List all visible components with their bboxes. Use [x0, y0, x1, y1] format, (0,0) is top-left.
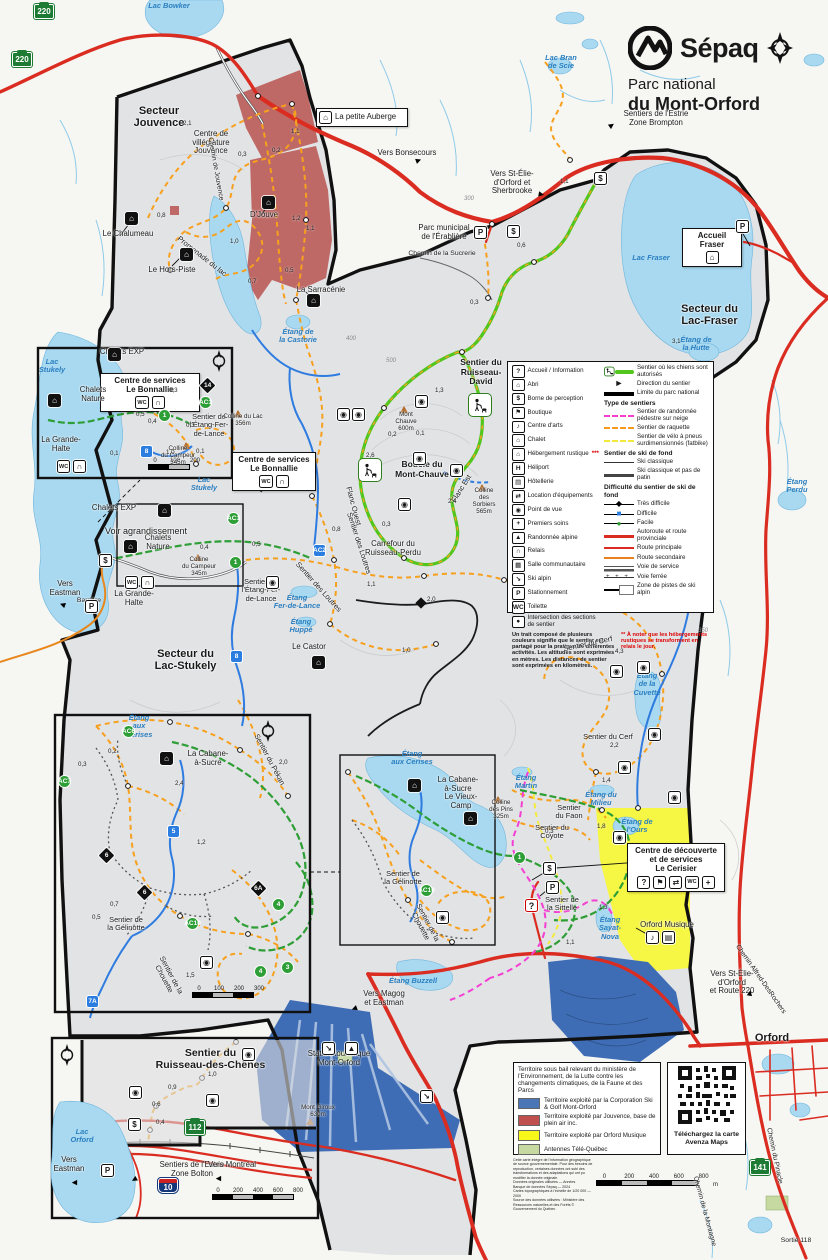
map-label: 2,0 [279, 760, 288, 767]
map-icon: P [101, 1164, 114, 1177]
trail-marker: 1 [513, 851, 526, 864]
legend-facilities: ? Accueil / Information ⌂ Abri $ Borne d… [512, 365, 600, 630]
facility-label: Toilette [528, 604, 548, 611]
map-label: 0,8 [157, 213, 166, 220]
map-label: 1,1 [367, 582, 376, 589]
map-label: Orford Musique [626, 921, 708, 930]
map-icon: ⌂ [158, 504, 171, 517]
roads-legend-list: Autoroute et route provinciale Route pri… [604, 529, 709, 596]
map-label: Lac Stukely [183, 476, 225, 493]
map-label: 0,2 [388, 432, 397, 439]
warming-hut-icon: ∩ Relais [512, 546, 600, 559]
map-label: 0,6 [517, 243, 526, 250]
map-label: 0,3 [470, 300, 479, 307]
map-label: Chemin de la Sucrerie [396, 250, 488, 258]
map-label: Vers Eastman [44, 580, 86, 597]
map-icon: ◉ [398, 498, 411, 511]
facility-label: Boutique [528, 410, 552, 417]
map-label: 1,0 [402, 648, 411, 655]
trail-direction-arrow: ► [744, 988, 755, 999]
road-label: Route principale [637, 545, 682, 552]
map-icon: ◉ [352, 408, 365, 421]
dog-allowed-icon [358, 458, 382, 482]
map-label: Lac Stukely [34, 358, 70, 375]
map-icon: $ [594, 172, 607, 185]
railway-swatch: Voie ferrée [604, 573, 709, 581]
difficulty-marker: ● [617, 520, 622, 528]
map-label: Étang Martin [508, 774, 544, 791]
trail-type-label: Sentier de vélo à pneus surdimensionnés … [637, 434, 709, 448]
map-icon: $ [543, 862, 556, 875]
map-icon: ◉ [129, 1086, 142, 1099]
map-label: Colline du Lac 356m [220, 414, 266, 428]
territory-list: Territoire exploité par la Corporation S… [518, 1097, 656, 1155]
map-icon: ↘ [322, 1042, 335, 1055]
facility-icon: ⌂ [512, 434, 525, 447]
map-label: 2,4 [448, 499, 457, 506]
map-label: Sentier du Ruisseau-des-Chênes [118, 1048, 303, 1072]
map-label: 1,0 [230, 239, 239, 246]
warming-hut-icon: ∩ [152, 396, 165, 409]
arts-centre-icon: ♪ Centre d'arts [512, 421, 600, 434]
shop-icon: ⚑ Boutique [512, 407, 600, 420]
facility-label: Intersection des sections de sentier [528, 615, 598, 629]
map-header: Sépaq Parc national du Mont-Orford [628, 26, 824, 115]
map-label: Vers Eastman [46, 1156, 92, 1173]
trail-direction-arrow: ► [536, 188, 547, 199]
trail-types-list: Sentier de randonnée pédestre sur neige … [604, 409, 709, 447]
map-label: Le Vieux- Camp [436, 793, 486, 810]
map-icon: ⌂ [124, 540, 137, 553]
territory-legend: Territoire sous bail relevant du ministè… [513, 1062, 661, 1155]
map-icon: ◉ [242, 1048, 255, 1061]
map-icon: ◉ [200, 956, 213, 969]
road-swatch [604, 547, 634, 549]
map-label: La Cabane- à-Sucre [430, 776, 486, 793]
map-label: Secteur du Lac-Stukely [128, 648, 243, 673]
map-label: 0,5 [92, 915, 101, 922]
map-label: 1,5 [186, 973, 195, 980]
map-label: 1,1 [306, 226, 315, 233]
facility-icon: ⇄ [512, 490, 525, 503]
map-label: Parc municipal de l'Érablière [406, 224, 482, 241]
road-swatch [604, 589, 619, 591]
facility-label: Abri [528, 382, 539, 389]
map-label: Étang Fer-de-Lance [268, 594, 326, 611]
map-icon: ↘ [420, 1090, 433, 1103]
map-label: 0,3 [169, 388, 178, 395]
xc-swatch [604, 474, 634, 477]
accueil-fraser-title: Accueil Fraser [686, 231, 738, 249]
map-label: 0,3 [382, 522, 391, 529]
direction-arrow-icon: ► [604, 380, 634, 388]
trail-marker: AC10 [420, 884, 433, 897]
map-label: 2,2 [610, 743, 619, 750]
road-label: Route secondaire [637, 555, 686, 562]
trail-type-swatch [604, 427, 634, 429]
map-label: 0,7 [110, 902, 119, 909]
trail-marker: AC1 [227, 512, 240, 525]
territory-label: Territoire exploité par la Corporation S… [544, 1097, 656, 1111]
map-icon: ▤ [662, 931, 675, 944]
map-label: Vers Bonsecours [366, 149, 448, 158]
map-label: Station touristique Mont-Orford [288, 1050, 390, 1067]
map-icon: ⌂ [160, 752, 173, 765]
map-label: Chalets Nature [133, 534, 183, 551]
alpine-hiking-icon: ▲ Randonnée alpine [512, 532, 600, 545]
territory-row: Territoire exploité par Jouvence, base d… [518, 1113, 656, 1127]
map-label: 2,4 [175, 781, 184, 788]
park-limit-swatch [604, 392, 634, 396]
facility-icon: H [512, 462, 525, 475]
map-icon: WC [125, 576, 138, 589]
map-label: 0,4 [200, 545, 209, 552]
map-label: 0,3 [78, 762, 87, 769]
map-label: Vers Montréal [196, 1161, 268, 1170]
facility-label: Salle communautaire [528, 562, 586, 569]
map-label: Étang Huppé [280, 618, 322, 635]
trail-types-header: Type de sentiers [604, 400, 709, 407]
map-label: 1,3 [599, 905, 608, 912]
map-label: Colline du Campeur 345m [176, 557, 222, 578]
map-label: Secteur du Lac-Fraser [652, 303, 767, 328]
shelter-icon: ⌂ Abri [512, 379, 600, 392]
map-label: 0,4 [156, 1120, 165, 1127]
map-label: 0,5 [136, 412, 145, 419]
facility-icon: WC [512, 601, 525, 614]
map-label: La Sarracénie [286, 286, 356, 295]
map-label: La Grande- Halte [103, 590, 165, 607]
map-label: 0,2 [272, 148, 281, 155]
bonnallie-main-box: Centre de services Le Bonnallie WC ∩ [232, 452, 316, 491]
route-shield: 220 [12, 52, 32, 67]
map-label: 1,0 [208, 1072, 217, 1079]
dog-trail-label: Sentier où les chiens sont autorisés [637, 365, 709, 379]
first-aid-icon: + [702, 876, 715, 889]
map-label: 350 [698, 628, 708, 635]
trail-direction-arrow: ► [214, 1174, 223, 1184]
facility-icon: $ [512, 393, 525, 406]
hotel-icon: ▤ Hôtellerie [512, 476, 600, 489]
facility-label: Borne de perception [528, 396, 584, 403]
map-icon: ♪ [646, 931, 659, 944]
info-icon: ? [637, 876, 650, 889]
facility-icon: ● [512, 616, 525, 629]
map-label: Le Castor [283, 643, 335, 652]
lodge-icon: ⌂ [319, 111, 332, 124]
skate-ski-swatch: Ski classique et pas de patin [604, 468, 709, 482]
trail-type-label: Sentier de raquette [637, 425, 690, 432]
map-label: 1,1 [560, 179, 569, 186]
map-icon: ◉ [648, 728, 661, 741]
map-label: Colline des Sorbiers 565m [466, 488, 502, 516]
toilet-icon: WC [685, 876, 698, 889]
map-label: 2,6 [366, 453, 375, 460]
route-shield: 112 [185, 1120, 205, 1135]
map-icon: ∩ [141, 576, 154, 589]
map-icon: ◉ [206, 1094, 219, 1107]
compass-icon [58, 1044, 76, 1066]
territory-swatch [518, 1130, 540, 1141]
brand-name: Sépaq [680, 33, 759, 64]
facility-icon: ▤ [512, 476, 525, 489]
map-label: Chalets EXP [86, 504, 142, 513]
snowshoe-swatch: Sentier de raquette [604, 424, 709, 432]
difficulty-list: ◆ Très difficile ■ Difficile ● Facile [604, 500, 709, 527]
route-shield: 141 [750, 1160, 770, 1175]
trail-direction-arrow: ► [70, 1178, 79, 1188]
map-icon: ◉ [668, 791, 681, 804]
park-title-line1: Parc national [628, 76, 824, 93]
trail-marker: 1 [158, 409, 171, 422]
map-label: 0,8 [332, 527, 341, 534]
map-label: 0,3 [186, 423, 195, 430]
trail-type-swatch [604, 415, 634, 417]
dog-trail-swatch [604, 368, 634, 376]
facility-label: Randonnée alpine [528, 535, 578, 542]
road-label: Voie de service [637, 564, 679, 571]
map-icon: ⌂ [108, 348, 121, 361]
map-label: 0,3 [238, 152, 247, 159]
territory-row: Territoire exploité par la Corporation S… [518, 1097, 656, 1111]
map-label: 500 [386, 358, 396, 365]
map-icon: ⌂ [307, 294, 320, 307]
main-road-swatch: Route principale [604, 544, 709, 552]
secondary-road-swatch: Route secondaire [604, 554, 709, 562]
parking-icon: P Stationnement [512, 587, 600, 600]
trail-marker: AC10 [186, 917, 199, 930]
bonnallie-main-title: Centre de services Le Bonnallie [236, 455, 312, 473]
map-label: Lac Orford [64, 1128, 100, 1145]
info-icon: ? Accueil / Information [512, 365, 600, 378]
sepaq-logo [628, 26, 672, 70]
map-label: Colline des Pins 325m [481, 800, 521, 821]
territory-swatch [518, 1144, 540, 1155]
facility-icon: ◉ [512, 504, 525, 517]
map-label: 1,8 [597, 824, 606, 831]
facility-icon: ? [512, 365, 525, 378]
map-label: La Cabane- à-Sucre [180, 750, 236, 767]
scalebar-inset2: 0100 200300 [192, 986, 282, 998]
map-label: 1,1 [291, 129, 300, 136]
qr-box: Téléchargez la carte Avenza Maps [667, 1062, 746, 1155]
facility-icon: ▲ [512, 532, 525, 545]
facility-icon: ⌂ [512, 448, 525, 461]
territory-label: Territoire exploité par Orford Musique [544, 1132, 646, 1139]
junction-icon: ● Intersection des sections de sentier [512, 615, 600, 629]
map-icon: ◉ [266, 576, 279, 589]
territory-swatch [518, 1115, 540, 1126]
map-label: 1,2 [197, 840, 206, 847]
facility-note: *** [592, 451, 599, 458]
trail-marker: AC6 [122, 725, 135, 738]
map-label: Le Chalumeau [92, 230, 164, 239]
legend-box: ? Accueil / Information ⌂ Abri $ Borne d… [507, 361, 714, 613]
map-label: Lac Bowker [138, 2, 200, 10]
heliport-icon: H Héliport [512, 462, 600, 475]
facility-icon: ⌂ [512, 379, 525, 392]
map-icon: ⌂ [48, 394, 61, 407]
map-label: 300 [464, 196, 474, 203]
petite-auberge-box: ⌂ La petite Auberge [316, 108, 408, 127]
facility-label: Centre d'arts [528, 423, 563, 430]
map-label: Le Hors-Piste [136, 266, 208, 275]
facility-label: Relais [528, 548, 545, 555]
map-icon: ⌂ [312, 656, 325, 669]
map-label: 0,1 [416, 431, 425, 438]
difficulty-header: Difficulté du sentier de ski de fond [604, 484, 709, 499]
map-label: 0,6 [152, 1102, 161, 1109]
legend-direction-row: ► Direction du sentier [604, 380, 709, 388]
highway-swatch: Autoroute et route provinciale [604, 529, 709, 543]
map-icon: ∩ [73, 460, 86, 473]
map-label: Sentier du Ruisseau- David [452, 358, 510, 387]
compass-icon [210, 350, 228, 372]
territory-title: Territoire sous bail relevant du ministè… [518, 1066, 656, 1095]
map-label: Étang aux Cerises [386, 750, 438, 767]
xc-label: Ski classique [637, 459, 673, 466]
map-label: Étang du Milieu [578, 791, 624, 808]
xc-swatch [604, 462, 634, 463]
trail-marker: 5 [167, 825, 180, 838]
reception-hut-icon: ⌂ [706, 251, 719, 264]
map-icon: ⌂ [464, 812, 477, 825]
map-icon: ◉ [415, 395, 428, 408]
map-icon: P [474, 226, 487, 239]
map-label: Chalets EXP [94, 348, 150, 357]
map-label: Mont Giroux 630m [290, 1105, 346, 1119]
map-icon: WC [57, 460, 70, 473]
facility-label: Héliport [528, 465, 549, 472]
direction-label: Direction du sentier [637, 381, 690, 388]
trail-marker: 4 [254, 965, 267, 978]
trail-type-label: Sentier de randonnée pédestre sur neige [637, 409, 709, 423]
facility-label: Hébergement rustique [528, 451, 589, 458]
classic-ski-swatch: Ski classique [604, 459, 709, 467]
road-label: Zone de pistes de ski alpin [637, 583, 709, 597]
trail-marker: AC7 [58, 775, 71, 788]
map-credits: Cette carte intègre de l'information géo… [513, 1158, 595, 1212]
map-label: La Grande- Halte [30, 436, 92, 453]
facility-icon: P [512, 587, 525, 600]
ski-zone-swatch: Zone de pistes de ski alpin [604, 583, 709, 597]
facility-icon: ▦ [512, 559, 525, 572]
map-label: 3,1 [672, 339, 681, 346]
map-label: Orford [742, 1032, 802, 1044]
compass-rose-icon [767, 32, 793, 64]
toilet-icon: WC [259, 475, 272, 488]
territory-label: Antennes Télé-Québec [544, 1146, 608, 1153]
trail-type-swatch [604, 440, 634, 442]
trail-marker: 1 [229, 556, 242, 569]
warming-hut-icon: ∩ [276, 475, 289, 488]
map-icon: ⌂ [408, 779, 421, 792]
map-label: 0,3 [545, 829, 554, 836]
trail-marker: AC2 [313, 544, 326, 557]
fee-station-icon: $ Borne de perception [512, 393, 600, 406]
facility-label: Ski alpin [528, 576, 551, 583]
trail-marker: 4 [272, 898, 285, 911]
trail-marker: AC1 [199, 396, 212, 409]
facility-icon: ∩ [512, 546, 525, 559]
map-label: 0,2 [108, 749, 117, 756]
road-swatch [604, 535, 634, 538]
map-icon: ◉ [610, 665, 623, 678]
toilet-icon: WC Toilette [512, 601, 600, 614]
map-icon: ◉ [413, 452, 426, 465]
map-label: 2,1 [183, 121, 192, 128]
map-icon: ⌂ [180, 248, 193, 261]
map-label: 0,7 [248, 279, 257, 286]
trail-marker: 8 [140, 445, 153, 458]
viewpoint-icon: ◉ Point de vue [512, 504, 600, 517]
map-icon: ⌂ [262, 196, 275, 209]
map-label: Chalets Nature [70, 386, 116, 403]
territory-label: Territoire exploité par Jouvence, base d… [544, 1113, 656, 1127]
map-icon: P [546, 881, 559, 894]
easy-swatch: ● Facile [604, 520, 709, 528]
map-icon: $ [99, 554, 112, 567]
map-label: 0,1 [196, 449, 205, 456]
facility-label: Accueil / Information [528, 368, 584, 375]
equipment-rental-icon: ⇄ [669, 876, 682, 889]
dog-trail-line [615, 370, 634, 374]
facility-label: Stationnement [528, 590, 568, 597]
difficulty-label: Difficile [637, 511, 657, 518]
very-difficult-swatch: ◆ Très difficile [604, 500, 709, 508]
map-label: 0,5 [252, 542, 261, 549]
road-label: Voie ferrée [637, 574, 667, 581]
qr-code [678, 1066, 736, 1124]
map-label: 0,1 [110, 451, 119, 458]
map-label: 1,3 [435, 388, 444, 395]
map-label: 1,1 [566, 940, 575, 947]
facility-icon: + [512, 518, 525, 531]
map-label: Sortie 118 [773, 1237, 819, 1245]
dog-allowed-icon [468, 393, 492, 417]
map-label: 0,4 [148, 419, 157, 426]
qr-caption: Téléchargez la carte Avenza Maps [671, 1131, 742, 1147]
route-shield: 220 [34, 4, 54, 19]
facility-icon: ♪ [512, 421, 525, 434]
map-label: Étang Buzzell [380, 977, 446, 985]
road-swatch [604, 577, 634, 578]
facility-icon: ⚑ [512, 407, 525, 420]
road-swatch [604, 557, 634, 559]
zone-swatch [619, 585, 634, 595]
map-label: Lac Bran de Scie [538, 54, 584, 71]
alpine-ski-icon: ↘ Ski alpin [512, 573, 600, 586]
bonnallie-inset-title: Centre de services Le Bonnallie [104, 376, 196, 394]
map-label: 2,0 [427, 597, 436, 604]
facility-label: Point de vue [528, 507, 562, 514]
map-label: Lac Fraser [620, 254, 682, 262]
equipment-rental-icon: ⇄ Location d'équipements [512, 490, 600, 503]
map-icon: P [85, 600, 98, 613]
map-label: 1,0 [166, 450, 175, 457]
trail-marker: 8 [230, 650, 243, 663]
map-icon: ⌂ [125, 212, 138, 225]
map-icon: ◉ [450, 464, 463, 477]
first-aid-icon: + Premiers soins [512, 518, 600, 531]
map-label: Vers Magog et Eastman [353, 990, 415, 1007]
difficulty-marker: ■ [617, 510, 622, 518]
legend-limit-row: Limite du parc national [604, 390, 709, 398]
map-icon: ? [525, 899, 538, 912]
xc-header: Sentier de ski de fond [604, 450, 709, 457]
trail-marker: 3 [281, 961, 294, 974]
map-label: Sentier du Cerf [570, 733, 646, 741]
